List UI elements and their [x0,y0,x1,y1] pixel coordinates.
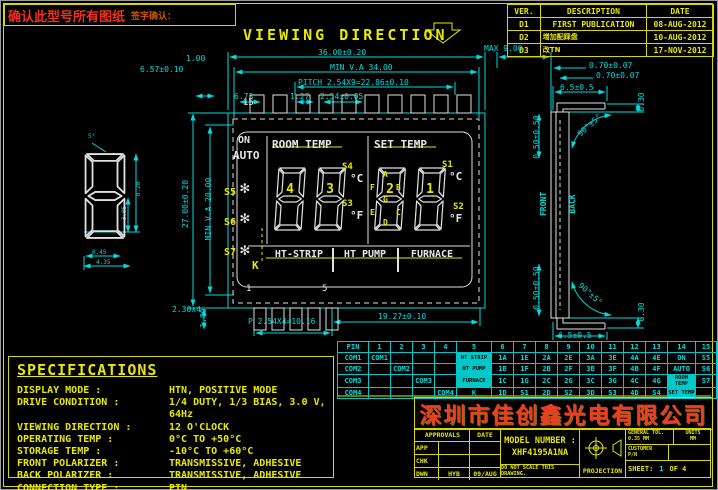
spec-row: CONNECTION TYPE :PIN [17,483,333,490]
pin-connection-table: PIN123456789101112131415COM1COM1HT STRIP… [337,341,717,399]
pin-table-header: 6 [492,342,514,353]
pin-table-header: PIN [338,342,369,353]
rev-description: 增加配踩盘 [540,31,646,44]
dim-pitch-bottom: P 2.54X4=10.16 [248,318,315,326]
pin-table-header: 3 [413,342,435,353]
pin-table-cell: S6 [696,364,717,375]
spec-label: OPERATING TEMP : [17,434,169,446]
viewing-direction-label: VIEWING DIRECTION [243,26,448,44]
approvals-table: APPROVALS DATE APP CHK DWN HYB 09/AUG [415,429,501,477]
dim-0-30-top: 0.30 [638,91,646,113]
pin-table-cell: 2A [536,353,558,364]
pin-table-cell: 3C [580,375,602,388]
pin-table-cell [391,388,413,399]
pin-table-cell: 2E [558,353,580,364]
pin-table-cell [413,353,435,364]
pin-number-15: 15 [243,99,254,108]
spec-label: BACK POLARIZER : [17,470,169,482]
s7-label: S7 [224,248,236,258]
pin-table-header: 13 [646,342,668,353]
pin-table-cell [413,364,435,375]
pin-table-cell: COM2 [338,364,369,375]
s3-label: S3 [342,200,353,209]
pin-table-cell [369,364,391,375]
third-angle-projection-icon [583,435,623,461]
pin-table-cell: S5 [696,353,717,364]
customer-pn-cell: CUSTOMER P/N [626,445,669,460]
pin-table-header: 15 [696,342,717,353]
pin-table-header: 10 [580,342,602,353]
pin-table-row: COM1COM1HT STRIP1A1E2A2E3A3E4A4EONS5 [338,353,717,364]
spec-value: -10°C TO +60°C [169,446,253,458]
rev-ver: D2 [508,31,541,44]
pin-table-cell: HT PUMP [457,364,492,375]
model-number-label: MODEL NUMBER : [504,436,576,446]
general-tolerance-value: 0.35 MM [628,436,673,442]
pin-table-cell: 1E [514,353,536,364]
pin-table-cell: AUTO [668,364,696,375]
confirmation-text: 确认此型号所有图纸 [8,6,125,25]
pin-table-cell: 4B [624,364,646,375]
pin-table-cell: 1C [492,375,514,388]
pin-table-row: COM3COM3FURNACE1C1G2C2G3C3G4C4GROOM TEMP… [338,375,717,388]
approvals-header: APPROVALS [415,429,470,441]
digit-pin-number: 3 [321,183,339,196]
dim-1-00-bottom: 1.00 [200,303,208,333]
sheet-of: OF 4 [670,465,687,473]
company-name: 深圳市佳创鑫光电有限公司 [419,398,707,430]
pin-table-cell: 4F [646,364,668,375]
pin-table-header: 2 [391,342,413,353]
sheet-label: SHEET: [628,465,653,473]
pin-table-cell: FURNACE [457,375,492,388]
spec-label: FRONT POLARIZER : [17,458,169,470]
dim-19-27: 19.27±0.10 [378,313,426,321]
dim-1-27: 1.27 [290,93,309,101]
segment-letter-c: C [396,209,401,217]
s1-label: S1 [442,161,453,170]
s4-label: S4 [342,163,353,172]
dim-1-00-top: 1.00 [186,55,205,63]
pin-table-header: 4 [435,342,457,353]
segment-letter-e: E [370,209,375,217]
segment-detail-digit [80,150,130,242]
pin-table-header: 14 [668,342,696,353]
spec-row: FRONT POLARIZER :TRANSMISSIVE, ADHESIVE [17,458,333,470]
lcd-digit-4 [271,165,310,233]
spec-value: HTN, POSITIVE MODE [169,385,277,397]
dim-0-70-b: 0.70±0.07 [596,72,639,80]
spec-label: DRIVE CONDITION : [17,397,169,421]
segment-letter-b: B [396,184,401,192]
furnace-label: FURNACE [400,250,464,260]
k-pin-label: K [252,260,259,271]
pin-table-cell: COM1 [338,353,369,364]
spec-row: STORAGE TEMP :-10°C TO +60°C [17,446,333,458]
pin-table-cell: 2B [536,364,558,375]
rev-header-description: DESCRIPTION [540,5,646,18]
lcd-room-temp-label: ROOM TEMP [272,139,332,150]
spec-label: DISPLAY MODE : [17,385,169,397]
dim-0-70-a: 0.70±0.07 [589,62,632,70]
rev-date: 08-AUG-2012 [647,18,714,31]
detail-dim-angle: 5° [88,134,95,140]
pin-table-cell: S7 [696,375,717,388]
ht-strip-label: HT-STRIP [268,250,330,260]
rev-date: 17-NOV-2012 [647,44,714,57]
pin-number-5: 5 [322,285,327,294]
pin-table-cell [369,388,391,399]
detail-dim-0-45: 0.45 [92,250,106,256]
pin-table-cell [435,353,457,364]
pin-table-header: 9 [558,342,580,353]
spec-value: 1/4 DUTY, 1/3 BIAS, 3.0 V, 64Hz [169,397,333,421]
dim-0-50-bottom: 0.50±0.50 [533,257,541,319]
segment-letter-f: F [370,184,375,192]
pin-table-cell [391,353,413,364]
pin-table-header: 5 [457,342,492,353]
spec-label: STORAGE TEMP : [17,446,169,458]
s2-label: S2 [453,203,464,212]
segment-letter-a: A [383,171,388,179]
rev-description: 改TN [540,44,646,57]
pin-table-header: 11 [602,342,624,353]
spec-value: PIN [169,483,187,490]
specifications-list: DISPLAY MODE :HTN, POSITIVE MODEDRIVE CO… [17,385,333,490]
spec-row: OPERATING TEMP :0°C TO +50°C [17,434,333,446]
spec-value: TRANSMISSIVE, ADHESIVE [169,470,301,482]
chk-name [439,455,470,467]
spec-value: 12 O'CLOCK [169,422,229,434]
dim-6-5-bottom: 6.5±0.5 [558,332,592,340]
rev-date: 10-AUG-2012 [647,31,714,44]
rev-header-date: DATE [647,5,714,18]
set-degf-symbol: °F [449,213,462,224]
pin-table-cell: 4G [646,375,668,388]
viewing-direction-arrow-icon [424,20,464,46]
chk-row-label: CHK [415,455,439,467]
title-block: APPROVALS DATE APP CHK DWN HYB 09/AUG MO… [414,428,711,478]
pin-table-cell: ON [668,353,696,364]
pin-table-cell [369,375,391,388]
pin-table-row: COM2COM2HT PUMP1B1F2B2F3B3F4B4FAUTOS6 [338,364,717,375]
pn-label: P/N [628,452,668,458]
spec-row: DISPLAY MODE :HTN, POSITIVE MODE [17,385,333,397]
pin-table-cell: 3B [580,364,602,375]
dim-max-depth: MAX 9.00 [484,45,523,53]
pin-table-cell: 3E [602,353,624,364]
pin-table-cell: COM2 [391,364,413,375]
sheet-number: 1 [659,465,663,473]
general-tolerance-cell: GENERAL TOL. 0.35 MM [626,429,674,444]
dwn-row-label: DWN [415,468,439,480]
detail-dim-8-20: 8.20 [136,176,142,202]
confirmation-box: 确认此型号所有图纸 签字确认： [4,4,236,26]
pin-table-cell: 3F [602,364,624,375]
set-degc-symbol: °C [449,171,462,182]
app-row-label: APP [415,442,439,454]
lcd-on-label: ON [238,136,250,146]
rev-ver: D1 [508,18,541,31]
pin-table-cell: COM3 [338,375,369,388]
rev-description: FIRST PUBLICATION [540,18,646,31]
s5-label: S5 [224,188,236,198]
front-side-label: FRONT [540,183,548,225]
approvals-date-header: DATE [470,431,500,439]
dim-6-5-top: 6.5±0.5 [560,84,594,92]
lcd-set-temp-label: SET TEMP [374,139,427,150]
spec-row: BACK POLARIZER :TRANSMISSIVE, ADHESIVE [17,470,333,482]
dim-width-total: 36.00±0.20 [318,49,366,57]
spec-row: VIEWING DIRECTION :12 O'CLOCK [17,422,333,434]
pin-table-cell: 4E [646,353,668,364]
pin-table-cell: 3A [580,353,602,364]
specifications-panel: SPECIFICATIONS DISPLAY MODE :HTN, POSITI… [8,356,334,478]
pin-table-cell: 2G [558,375,580,388]
pin-table-cell: HT STRIP [457,353,492,364]
model-number-value: XHF4195A1NA [512,448,568,458]
lcd-digit-1 [411,165,450,233]
pin-table-cell: 1A [492,353,514,364]
pin-table-cell: 1B [492,364,514,375]
dim-width-va: MIN V.A 34.00 [330,64,393,72]
pin-table-header: 12 [624,342,646,353]
model-number-box: MODEL NUMBER : XHF4195A1NA DO NOT SCALE … [501,429,580,477]
units-value: MM [676,436,710,442]
dim-2-54: 2.54±0.05 [320,93,363,101]
pin-table-cell: 1F [514,364,536,375]
dim-6-57: 6.57±0.10 [140,66,183,74]
pin-table-cell: 2C [536,375,558,388]
pin-table-header: 1 [369,342,391,353]
pin-table-cell [435,375,457,388]
dim-pitch-top: PITCH 2.54X9=22.86±0.10 [298,79,409,87]
pin-number-1: 1 [246,285,251,294]
pin-table-cell: COM1 [369,353,391,364]
spec-label: CONNECTION TYPE : [17,483,169,490]
pin-table-header: 7 [514,342,536,353]
pin-table-cell: ROOM TEMP [668,375,696,388]
room-degf-symbol: °F [350,210,363,221]
dim-height-total: 27.00±0.20 [182,168,190,240]
digit-pin-number: 1 [421,183,439,196]
pin-table-cell: 2F [558,364,580,375]
lcd-auto-label: AUTO [233,150,260,161]
rev-header-ver: VER. [508,5,541,18]
digit-pin-number: 4 [281,183,299,196]
spec-row: DRIVE CONDITION :1/4 DUTY, 1/3 BIAS, 3.0… [17,397,333,421]
dwn-name: HYB [439,468,470,480]
segment-letter-d: D [383,219,388,227]
dwn-date: 09/AUG [470,470,500,478]
pin-table-header: 8 [536,342,558,353]
pin-table-cell: 3G [602,375,624,388]
lcd-digit-2 [371,165,410,233]
segment-letter-g: G [383,196,388,204]
back-side-label: BACK [569,183,577,225]
pin-table-cell [391,375,413,388]
dim-2-30x4: 2.30x4 [172,306,201,314]
pin-table-cell: 4C [624,375,646,388]
projection-box: PROJECTION [580,429,626,477]
units-cell: UNITS MM [674,429,710,444]
app-name [439,442,470,454]
pin-table-cell: COM3 [413,375,435,388]
ht-pump-label: HT PUMP [336,250,394,260]
dim-0-30-bottom: 0.30 [638,301,646,323]
company-name-box: 深圳市佳创鑫光电有限公司 [414,397,713,430]
spec-value: 0°C TO +50°C [169,434,241,446]
snowflake-icon: ✻ [240,242,250,258]
do-not-scale-note: DO NOT SCALE THIS DRAWING. [501,464,579,477]
snowflake-icon: ✻ [240,210,250,226]
spec-label: VIEWING DIRECTION : [17,422,169,434]
pin-table-cell: COM4 [338,388,369,399]
projection-label: PROJECTION [583,467,622,475]
spec-value: TRANSMISSIVE, ADHESIVE [169,458,301,470]
room-degc-symbol: °C [350,173,363,184]
s6-label: S6 [224,218,236,228]
pin-table-cell [435,364,457,375]
snowflake-icon: ✻ [240,180,250,196]
title-block-info: GENERAL TOL. 0.35 MM UNITS MM CUSTOMER P… [626,429,710,477]
engineering-drawing-sheet: 确认此型号所有图纸 签字确认： VER. DESCRIPTION DATE D1… [0,0,718,490]
dim-0-50-top: 0.50±0.50 [533,106,541,168]
signature-label: 签字确认： [131,9,176,22]
detail-dim-4-35: 4.35 [96,260,110,266]
pin-table-cell: 4A [624,353,646,364]
pin-table-cell: 1G [514,375,536,388]
revision-table: VER. DESCRIPTION DATE D1 FIRST PUBLICATI… [507,4,714,57]
dim-height-va: MIN V.A 20.00 [205,168,213,250]
specifications-title: SPECIFICATIONS [17,361,333,379]
